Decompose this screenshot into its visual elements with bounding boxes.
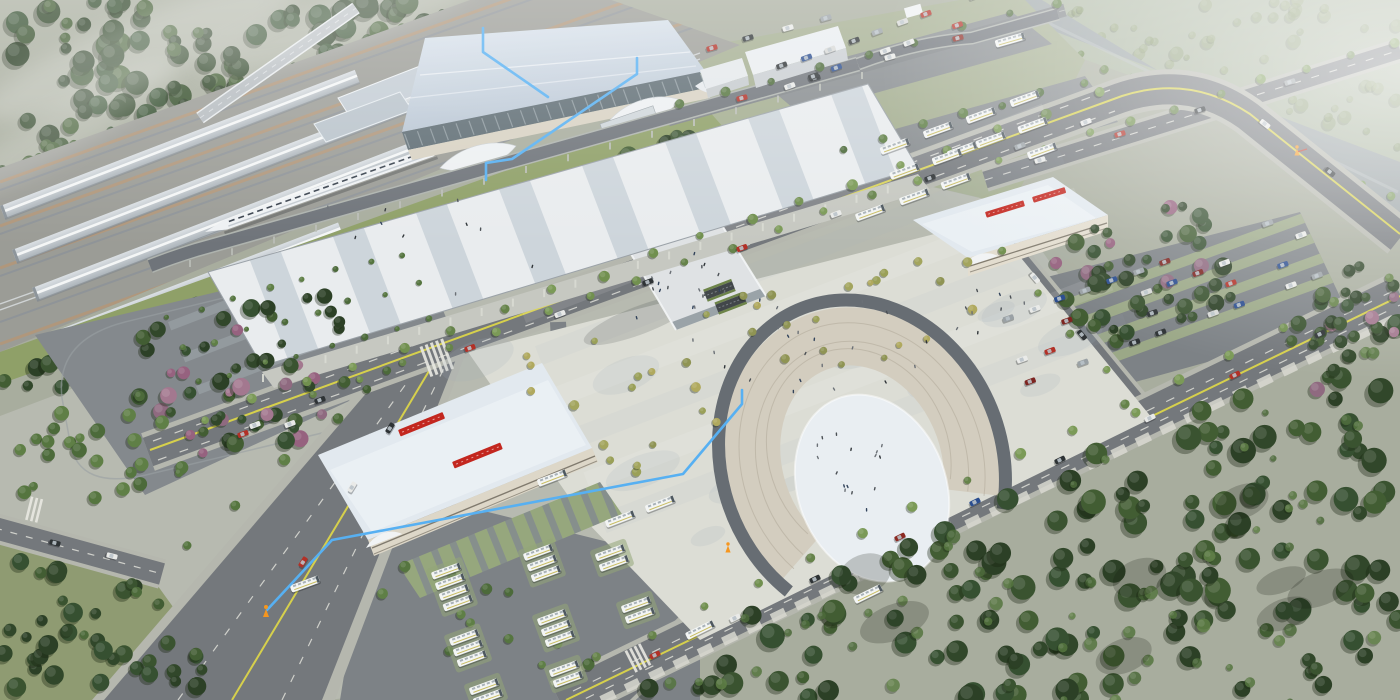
station-complex-rendering bbox=[0, 0, 1400, 700]
atmosphere-haze bbox=[0, 0, 1400, 700]
top-haze bbox=[0, 0, 1400, 700]
aerial-render-stage bbox=[0, 0, 1400, 700]
